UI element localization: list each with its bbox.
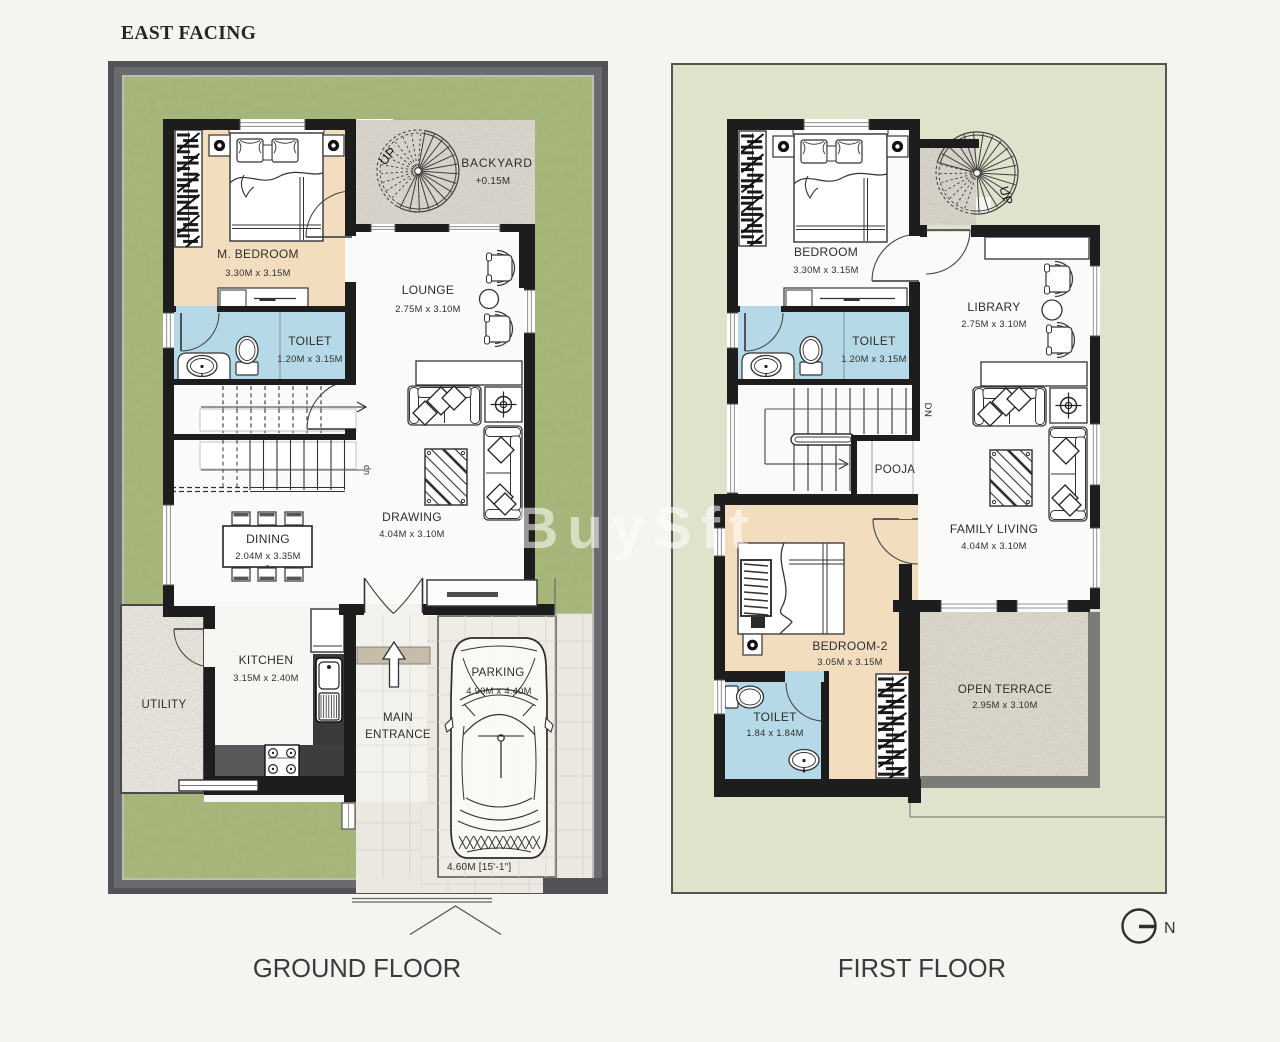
svg-text:BEDROOM: BEDROOM	[794, 245, 858, 259]
svg-text:4.60M [15'-1"]: 4.60M [15'-1"]	[447, 862, 511, 873]
svg-text:EAST FACING: EAST FACING	[121, 23, 256, 44]
svg-text:TOILET: TOILET	[753, 710, 797, 724]
svg-text:LOUNGE: LOUNGE	[402, 283, 454, 297]
svg-text:MAIN: MAIN	[383, 712, 413, 724]
svg-text:TOILET: TOILET	[288, 334, 332, 348]
svg-text:DRAWING: DRAWING	[382, 510, 442, 524]
svg-text:+0.15M: +0.15M	[476, 176, 511, 187]
svg-text:4.04M x 3.10M: 4.04M x 3.10M	[961, 541, 1026, 551]
svg-text:POOJA: POOJA	[875, 464, 916, 476]
svg-text:1.20M x 3.15M: 1.20M x 3.15M	[277, 354, 342, 364]
svg-text:TOILET: TOILET	[852, 334, 896, 348]
svg-text:BACKYARD: BACKYARD	[461, 156, 533, 170]
svg-text:1.84 x 1.84M: 1.84 x 1.84M	[746, 728, 803, 738]
svg-text:BEDROOM-2: BEDROOM-2	[812, 639, 887, 653]
svg-text:GROUND FLOOR: GROUND FLOOR	[253, 955, 461, 983]
svg-text:FIRST FLOOR: FIRST FLOOR	[838, 955, 1006, 983]
svg-text:up: up	[361, 465, 371, 475]
svg-text:N: N	[1164, 920, 1176, 937]
svg-text:3.30M x 3.15M: 3.30M x 3.15M	[225, 268, 290, 278]
svg-text:2.75M x 3.10M: 2.75M x 3.10M	[961, 319, 1026, 329]
svg-text:DN: DN	[922, 403, 933, 418]
svg-text:DINING: DINING	[246, 532, 290, 546]
svg-text:UTILITY: UTILITY	[142, 699, 187, 711]
svg-text:FAMILY LIVING: FAMILY LIVING	[950, 522, 1038, 536]
svg-text:4.04M x 3.10M: 4.04M x 3.10M	[379, 529, 444, 539]
svg-text:2.04M x 3.35M: 2.04M x 3.35M	[235, 551, 300, 561]
svg-text:BuySft: BuySft	[517, 496, 758, 561]
svg-text:KITCHEN: KITCHEN	[239, 653, 294, 667]
svg-text:3.05M x 3.15M: 3.05M x 3.15M	[817, 657, 882, 667]
svg-text:PARKING: PARKING	[471, 667, 524, 679]
svg-text:LIBRARY: LIBRARY	[967, 300, 1020, 314]
svg-text:4.90M x 4.40M: 4.90M x 4.40M	[466, 686, 531, 696]
svg-text:M. BEDROOM: M. BEDROOM	[217, 247, 299, 261]
svg-text:ENTRANCE: ENTRANCE	[365, 729, 431, 741]
svg-text:2.95M x 3.10M: 2.95M x 3.10M	[972, 700, 1037, 710]
svg-text:2.75M x 3.10M: 2.75M x 3.10M	[395, 304, 460, 314]
svg-text:3.30M x 3.15M: 3.30M x 3.15M	[793, 265, 858, 275]
svg-text:OPEN TERRACE: OPEN TERRACE	[958, 684, 1052, 696]
svg-text:3.15M x 2.40M: 3.15M x 2.40M	[233, 673, 298, 683]
svg-text:1.20M x 3.15M: 1.20M x 3.15M	[841, 354, 906, 364]
